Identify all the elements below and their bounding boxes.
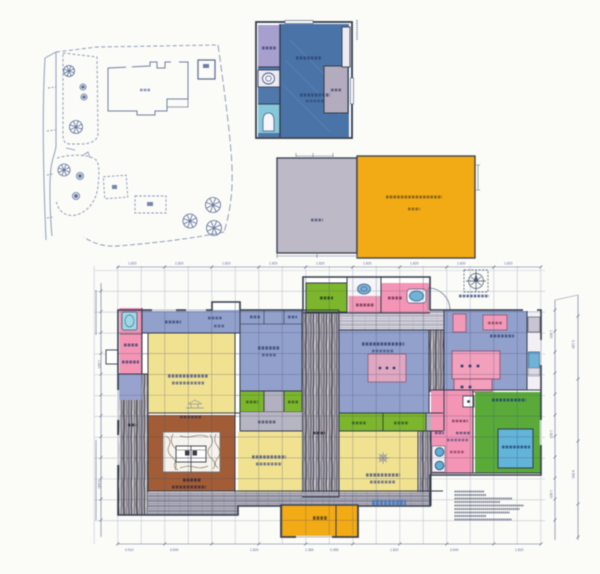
svg-text:3.640: 3.640 — [450, 548, 459, 552]
svg-text:3.185: 3.185 — [571, 340, 575, 349]
svg-text:0.910: 0.910 — [125, 548, 134, 552]
svg-text:1.820: 1.820 — [128, 262, 137, 266]
svg-text:1.820: 1.820 — [363, 262, 372, 266]
svg-text:4.550: 4.550 — [571, 470, 575, 479]
svg-text:1.820: 1.820 — [410, 262, 419, 266]
svg-text:1.820: 1.820 — [390, 548, 399, 552]
svg-text:1.820: 1.820 — [269, 262, 278, 266]
svg-text:1.820: 1.820 — [457, 262, 466, 266]
svg-text:1.820: 1.820 — [549, 490, 553, 499]
svg-text:1.820: 1.820 — [549, 430, 553, 439]
svg-text:0.455: 0.455 — [330, 548, 339, 552]
svg-text:3.640: 3.640 — [170, 548, 179, 552]
svg-text:1.820: 1.820 — [316, 262, 325, 266]
svg-text:1.820: 1.820 — [222, 262, 231, 266]
svg-text:1.365: 1.365 — [305, 548, 314, 552]
svg-text:1.820: 1.820 — [549, 330, 553, 339]
svg-text:1.820: 1.820 — [515, 548, 524, 552]
svg-text:3.640: 3.640 — [97, 480, 101, 489]
svg-text:1.820: 1.820 — [250, 548, 259, 552]
svg-text:1.820: 1.820 — [175, 262, 184, 266]
svg-text:1.820: 1.820 — [504, 262, 513, 266]
svg-text:1.820: 1.820 — [97, 360, 101, 369]
